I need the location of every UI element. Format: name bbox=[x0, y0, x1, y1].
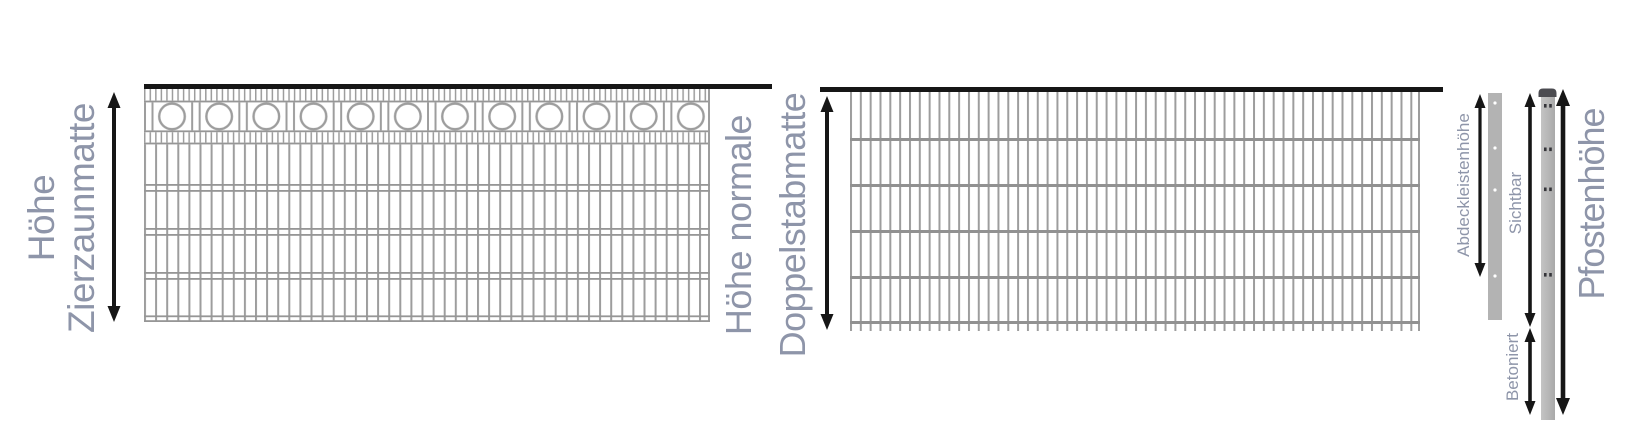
doppelstabmatte-top-bar bbox=[820, 87, 1443, 92]
strip-hole bbox=[1493, 274, 1496, 277]
post-height-arrow bbox=[1556, 89, 1570, 415]
strip-hole bbox=[1493, 146, 1496, 149]
doppelstabmatte-panel bbox=[820, 87, 1443, 331]
fence-measurement-diagram: Höhe Zierzaunmatte Höhe normale Doppelst… bbox=[0, 0, 1644, 425]
doppelstabmatte-label-line1: Höhe normale bbox=[712, 25, 766, 425]
cover-strip bbox=[1488, 93, 1502, 320]
zierzaunmatte-label-line1: Höhe bbox=[22, 18, 62, 418]
concreted-depth-label: Betoniert bbox=[1504, 297, 1522, 425]
cover-strip-height-label: Abdeckleistenhöhe bbox=[1455, 65, 1473, 305]
strip-hole bbox=[1493, 188, 1496, 191]
visible-height-arrow bbox=[1525, 93, 1536, 327]
zierzaunmatte-label-line2: Zierzaunmatte bbox=[62, 18, 102, 418]
doppelstabmatte-height-arrow bbox=[821, 96, 834, 330]
strip-hole bbox=[1493, 101, 1496, 104]
visible-height-label: Sichtbar bbox=[1507, 133, 1525, 273]
zierzaunmatte-height-arrow bbox=[108, 92, 121, 322]
post-height-label: Pfostenhöhe bbox=[1571, 54, 1613, 354]
cover-strip-height-arrow bbox=[1475, 94, 1486, 277]
concreted-depth-arrow bbox=[1525, 328, 1536, 415]
zierzaunmatte-height-label: Höhe Zierzaunmatte bbox=[22, 18, 102, 418]
zierzaunmatte-panel bbox=[144, 84, 772, 322]
ornament-circles-row bbox=[144, 102, 710, 130]
doppelstabmatte-label-line2: Doppelstabmatte bbox=[766, 25, 820, 425]
fence-post bbox=[1539, 89, 1557, 421]
zierzaunmatte-top-bar bbox=[144, 84, 772, 89]
diagram-canvas bbox=[0, 0, 1644, 425]
doppelstabmatte-height-label: Höhe normale Doppelstabmatte bbox=[712, 25, 820, 425]
post-cap bbox=[1539, 89, 1557, 98]
